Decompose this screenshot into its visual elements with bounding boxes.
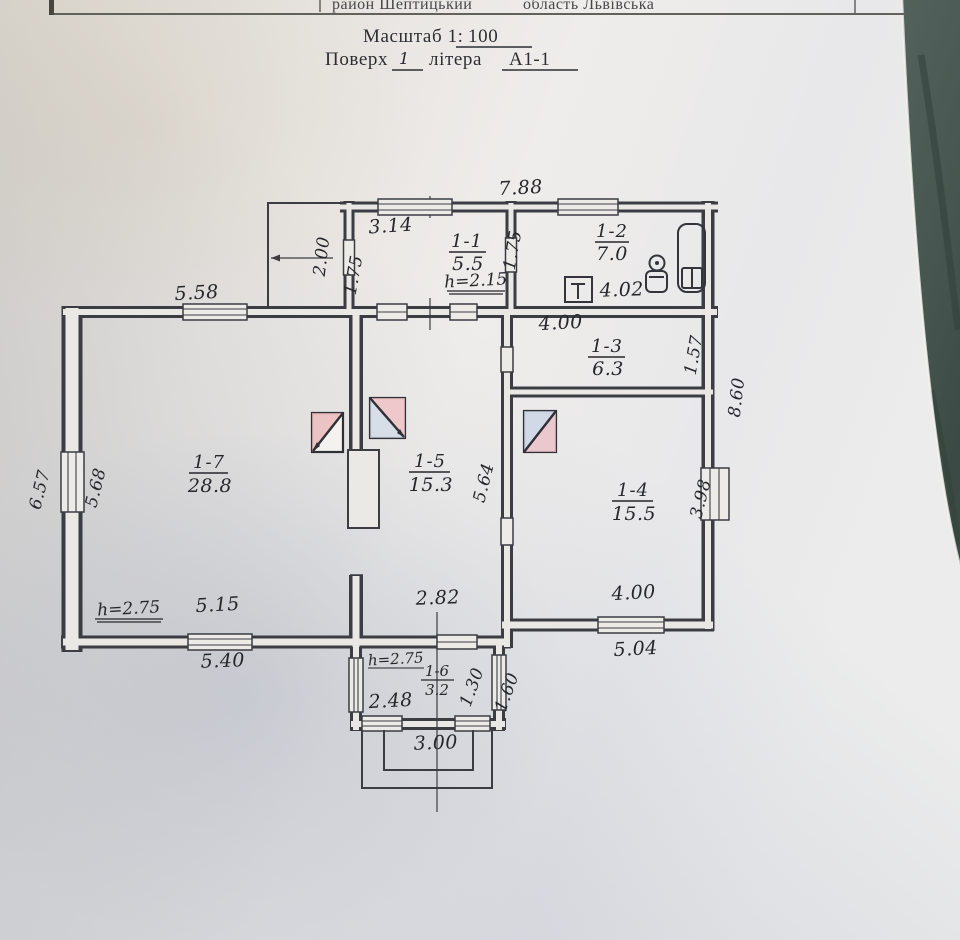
door-threshold bbox=[450, 304, 477, 320]
dim-room-1-3-width: 4.00 bbox=[537, 311, 583, 335]
height-note-1-7: h=2.75 bbox=[97, 597, 161, 620]
door-threshold bbox=[437, 635, 477, 649]
window bbox=[378, 199, 452, 215]
region-text: область Львівська bbox=[523, 0, 654, 13]
door-threshold bbox=[501, 518, 513, 545]
room-label-1-3: 1-3 bbox=[591, 336, 623, 357]
room-label-1-6: 1-6 bbox=[425, 662, 450, 680]
letter-label: літера bbox=[429, 49, 482, 70]
dim-room-1-5-bottom: 2.82 bbox=[414, 586, 460, 610]
dim-room-1-4-bottom: 4.00 bbox=[610, 581, 656, 605]
height-note-1-6: h=2.75 bbox=[367, 649, 424, 670]
photo-of-floor-plan: район Шептицький область Львівська Масшт… bbox=[0, 0, 960, 940]
window bbox=[455, 716, 490, 731]
floor-value: 1 bbox=[399, 49, 409, 68]
room-area-1-4: 15.5 bbox=[612, 503, 656, 525]
scale-value: 100 bbox=[468, 26, 498, 47]
door-threshold bbox=[377, 304, 407, 320]
window bbox=[349, 658, 363, 712]
room-label-1-4: 1-4 bbox=[617, 480, 649, 501]
dim-bottom-right-outer: 5.04 bbox=[613, 637, 658, 661]
room-label-1-1: 1-1 bbox=[451, 231, 483, 252]
door-threshold bbox=[501, 347, 513, 372]
room-area-1-6: 3.2 bbox=[425, 681, 449, 699]
dim-room-1-1-width: 3.14 bbox=[368, 213, 414, 238]
dim-room-1-7-bottom: 5.15 bbox=[195, 593, 240, 617]
window bbox=[183, 304, 247, 320]
floor-plan-drawing: район Шептицький область Львівська Масшт… bbox=[0, 0, 960, 940]
table-border bbox=[49, 0, 54, 15]
dim-top-overall: 7.88 bbox=[498, 176, 543, 200]
room-area-1-5: 15.3 bbox=[409, 474, 453, 496]
window bbox=[558, 199, 618, 215]
room-area-1-7: 28.8 bbox=[187, 475, 232, 497]
room-label-1-2: 1-2 bbox=[596, 221, 628, 242]
room-area-1-3: 6.3 bbox=[592, 358, 624, 380]
room-label-1-5: 1-5 bbox=[414, 451, 446, 472]
stove-icon bbox=[370, 398, 405, 438]
window bbox=[188, 634, 252, 650]
scale-label: Масштаб 1: bbox=[363, 26, 464, 47]
dim-room-1-2-width: 4.02 bbox=[598, 278, 644, 302]
window bbox=[362, 716, 402, 731]
height-note-1-1: h=2.15 bbox=[444, 269, 508, 292]
room-label-1-7: 1-7 bbox=[193, 452, 225, 473]
window bbox=[61, 452, 84, 512]
floor-label: Поверх bbox=[325, 49, 388, 70]
chimney-block bbox=[348, 450, 379, 528]
district-text: район Шептицький bbox=[332, 0, 472, 13]
dim-room-1-6-width: 2.48 bbox=[367, 689, 413, 713]
dim-bottom-left-outer: 5.40 bbox=[200, 649, 245, 673]
stove-icon bbox=[524, 411, 556, 452]
room-area-1-2: 7.0 bbox=[596, 243, 628, 265]
dim-entrance-steps-width: 3.00 bbox=[413, 731, 458, 755]
stove-icon bbox=[312, 413, 343, 452]
window bbox=[598, 617, 664, 633]
dim-room-1-7-top: 5.58 bbox=[174, 281, 219, 305]
letter-value: А1-1 bbox=[509, 49, 550, 70]
